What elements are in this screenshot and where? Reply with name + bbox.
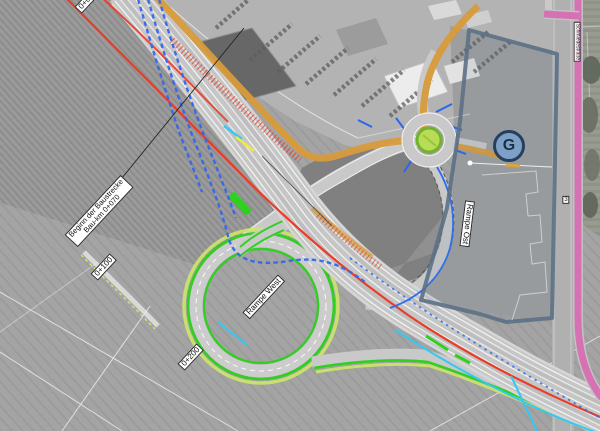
aerial-plan-map[interactable]: G Beginn der Baustrecke Bau-km 0+070 0+0… (0, 0, 600, 431)
building-topright-1 (428, 0, 462, 20)
farm-track (84, 252, 158, 326)
label-parcel-marker: 3 (562, 196, 569, 204)
label-street-name: Schmiedestraße (573, 22, 580, 62)
white-roof-building (384, 60, 448, 108)
area-marker-g-letter: G (503, 137, 515, 155)
roundabout (402, 113, 456, 167)
area-marker-g: G (493, 130, 525, 162)
